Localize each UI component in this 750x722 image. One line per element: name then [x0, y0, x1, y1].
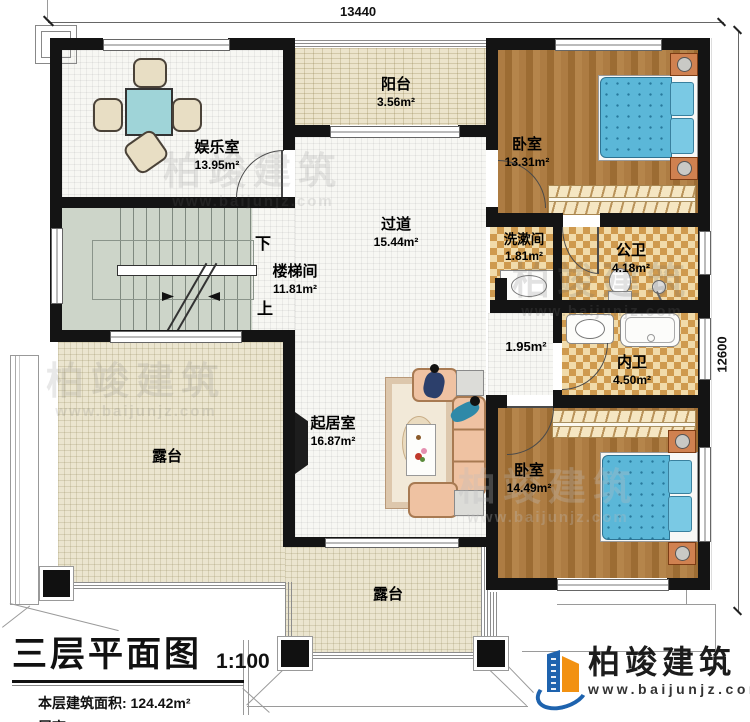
closet-rail [549, 197, 695, 202]
brand-url: www.baijunjz.com [588, 681, 750, 697]
stair-up-label: 上 [257, 295, 273, 319]
pillow [668, 460, 692, 494]
door-leaf [281, 150, 283, 197]
wall-segment [295, 125, 330, 137]
floor-height-text: 层高: 3.3m [38, 717, 270, 722]
pillow [670, 118, 694, 154]
room-label-public-bath: 公卫 4.18m² [612, 242, 650, 276]
room-name: 露台 [373, 586, 403, 605]
door-leaf [507, 406, 553, 408]
room-area: 4.50m² [613, 373, 651, 388]
dimension-line-top [48, 22, 724, 23]
wall-segment [553, 395, 710, 408]
pillow [668, 496, 692, 532]
lamp-icon [677, 161, 692, 176]
room-name: 洗漱间 [504, 232, 545, 249]
window [699, 231, 711, 275]
plan-title: 三层平面图 [12, 626, 202, 677]
room-area: 15.44m² [374, 235, 419, 250]
side-table [456, 370, 484, 396]
wall-segment [283, 38, 295, 150]
wall-segment [667, 578, 710, 590]
plan-scale: 1:100 [216, 650, 270, 674]
room-label-bedroom1: 卧室 13.31m² [505, 136, 550, 170]
closet-rail [553, 422, 695, 427]
porch-railing [490, 592, 497, 640]
logo-building-orange [562, 656, 579, 692]
wall-segment [486, 213, 563, 227]
coffee-table [406, 424, 436, 476]
sink-basin [511, 275, 547, 297]
room-name: 阳台 [377, 76, 415, 95]
wall-segment [486, 408, 498, 578]
shower-head [652, 280, 666, 294]
logo-building-blue [547, 650, 560, 692]
room-label-bedroom2: 卧室 14.49m² [507, 462, 552, 496]
nightstand [670, 53, 698, 76]
room-name: 娱乐室 [194, 139, 239, 158]
tv [295, 412, 308, 474]
stair-down-label: 下 [255, 230, 271, 254]
window [699, 447, 711, 542]
wall-segment [553, 227, 562, 300]
room-area: 3.56m² [377, 95, 415, 110]
wall-segment [486, 578, 557, 590]
porch-outline [557, 604, 716, 605]
terrace-railing [58, 582, 285, 591]
wall-segment [486, 395, 507, 408]
sofa [408, 482, 458, 518]
title-underline-thin [12, 685, 244, 686]
flower-decor [420, 457, 425, 462]
room-area: 13.95m² [194, 158, 239, 173]
leader-line [47, 0, 48, 18]
column [40, 567, 73, 600]
wall-segment [283, 342, 295, 547]
room-area: 1.81m² [504, 249, 545, 264]
porch-diagonal [2, 605, 30, 627]
room-label-stairwell: 楼梯间 11.81m² [272, 263, 317, 297]
sink-counter [500, 270, 558, 302]
room-label-terrace-left: 露台 [152, 448, 182, 467]
wall-segment [600, 213, 710, 227]
wall-segment [458, 125, 486, 137]
room-label-hallway: 1.95m² [505, 339, 546, 355]
title-underline [12, 680, 244, 683]
floor-area-text: 本层建筑面积: 124.42m² [38, 693, 270, 713]
terrace-railing [293, 652, 481, 661]
window [555, 39, 662, 51]
sink-counter [566, 314, 614, 344]
room-name: 过道 [374, 216, 419, 235]
lamp-icon [675, 434, 690, 449]
room-name: 起居室 [310, 415, 355, 434]
wall-segment [486, 38, 498, 150]
window [699, 318, 711, 380]
room-label-corridor: 过道 15.44m² [374, 216, 419, 250]
room-area: 14.49m² [507, 481, 552, 496]
sliding-door [330, 126, 460, 138]
porch-outline [247, 706, 528, 707]
room-name: 楼梯间 [272, 263, 317, 282]
window [103, 39, 230, 51]
drain-icon [647, 334, 655, 342]
lamp-icon [675, 546, 690, 561]
column [474, 637, 508, 670]
wall-segment [490, 300, 710, 313]
bed-mattress [600, 77, 672, 158]
chair [133, 58, 167, 88]
room-label-washroom: 洗漱间 1.81m² [504, 232, 545, 264]
nightstand [668, 430, 696, 453]
door-leaf [597, 227, 599, 273]
dimension-label-top: 13440 [340, 4, 376, 19]
room-label-private-bath: 内卫 4.50m² [613, 354, 651, 388]
side-table [454, 490, 484, 516]
stair-handrail [117, 265, 257, 276]
room-name: 内卫 [613, 354, 651, 373]
brand-name: 柏竣建筑 [588, 646, 750, 678]
wall-segment [50, 197, 295, 208]
room-label-living: 起居室 16.87m² [310, 415, 355, 449]
room-name: 卧室 [507, 462, 552, 481]
shower-tray [620, 313, 680, 347]
sink-basin [575, 319, 605, 339]
room-label-entertainment: 娱乐室 13.95m² [194, 139, 239, 173]
room-name: 公卫 [612, 242, 650, 261]
room-area: 13.31m² [505, 155, 550, 170]
room-area: 1.95m² [505, 339, 546, 355]
person-head [430, 364, 439, 373]
room-area: 4.18m² [612, 261, 650, 276]
game-table [125, 88, 173, 136]
flower-decor [421, 448, 427, 454]
bed-mattress [602, 455, 670, 540]
dimension-label-right: 12600 [715, 325, 730, 385]
brand-block: 柏竣建筑 www.baijunjz.com [538, 646, 750, 708]
dimension-line-right [738, 30, 739, 612]
brand-logo-icon [538, 646, 588, 708]
room-name: 露台 [152, 448, 182, 467]
closet [548, 185, 696, 215]
outer-railing-strip [10, 355, 39, 605]
room-name: 卧室 [505, 136, 550, 155]
nightstand [668, 542, 696, 565]
wall-segment [553, 313, 562, 343]
chair [172, 98, 202, 132]
lamp-icon [677, 57, 692, 72]
room-area: 16.87m² [310, 434, 355, 449]
wall-segment [50, 38, 62, 208]
fruit-decor [416, 435, 421, 440]
sliding-door [325, 538, 459, 548]
person-head [470, 396, 480, 406]
porch-outline [686, 590, 687, 605]
chair [93, 98, 123, 132]
window [110, 331, 242, 343]
pillow [670, 82, 694, 116]
exterior-trim [711, 38, 712, 590]
room-area: 11.81m² [272, 282, 317, 297]
nightstand [670, 157, 698, 180]
window [557, 579, 669, 591]
floor-plan-canvas: 13440 12600 下 上 [0, 0, 750, 722]
balcony-railing [295, 40, 486, 48]
column [278, 637, 312, 670]
room-label-terrace-bottom: 露台 [373, 586, 403, 605]
window [51, 228, 63, 304]
title-block: 三层平面图 1:100 本层建筑面积: 124.42m² 层高: 3.3m [12, 626, 270, 722]
room-label-balcony: 阳台 3.56m² [377, 76, 415, 110]
